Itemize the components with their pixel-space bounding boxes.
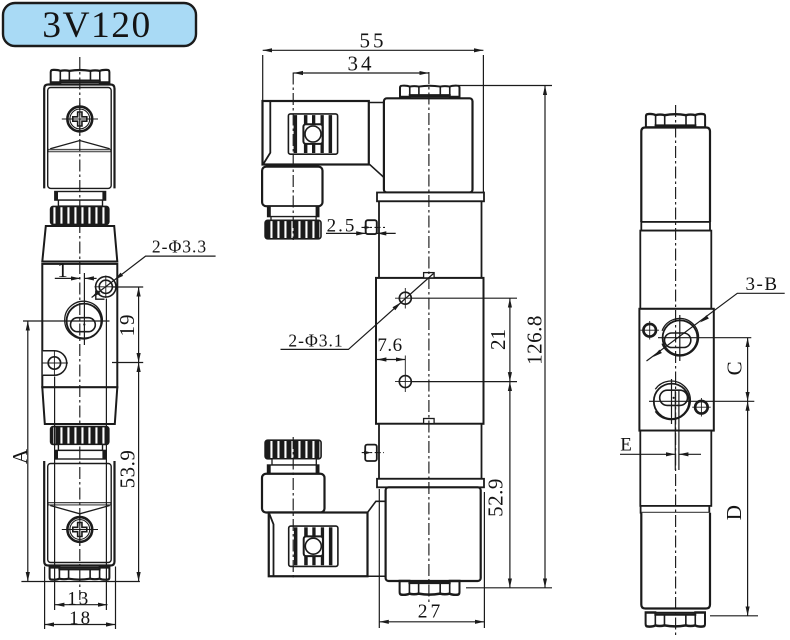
svg-text:21: 21 <box>486 329 510 350</box>
svg-text:53.9: 53.9 <box>116 450 140 489</box>
svg-text:13: 13 <box>67 588 90 609</box>
svg-text:D: D <box>722 505 746 520</box>
svg-text:34: 34 <box>348 52 375 76</box>
svg-text:27: 27 <box>418 602 444 623</box>
svg-text:2.5: 2.5 <box>327 216 357 237</box>
svg-text:C: C <box>723 361 747 375</box>
svg-text:52.9: 52.9 <box>484 478 508 517</box>
svg-text:3V120: 3V120 <box>42 5 152 46</box>
svg-text:126.8: 126.8 <box>523 315 547 365</box>
svg-text:2-Φ3.1: 2-Φ3.1 <box>288 330 343 350</box>
svg-text:7.6: 7.6 <box>377 335 402 356</box>
svg-text:3-B: 3-B <box>746 274 779 295</box>
svg-text:2-Φ3.3: 2-Φ3.3 <box>152 237 207 257</box>
svg-text:55: 55 <box>360 29 387 53</box>
svg-text:18: 18 <box>69 608 92 629</box>
svg-text:1: 1 <box>57 258 69 282</box>
svg-text:19: 19 <box>115 314 139 337</box>
svg-text:A: A <box>8 448 32 464</box>
svg-text:E: E <box>620 435 632 456</box>
